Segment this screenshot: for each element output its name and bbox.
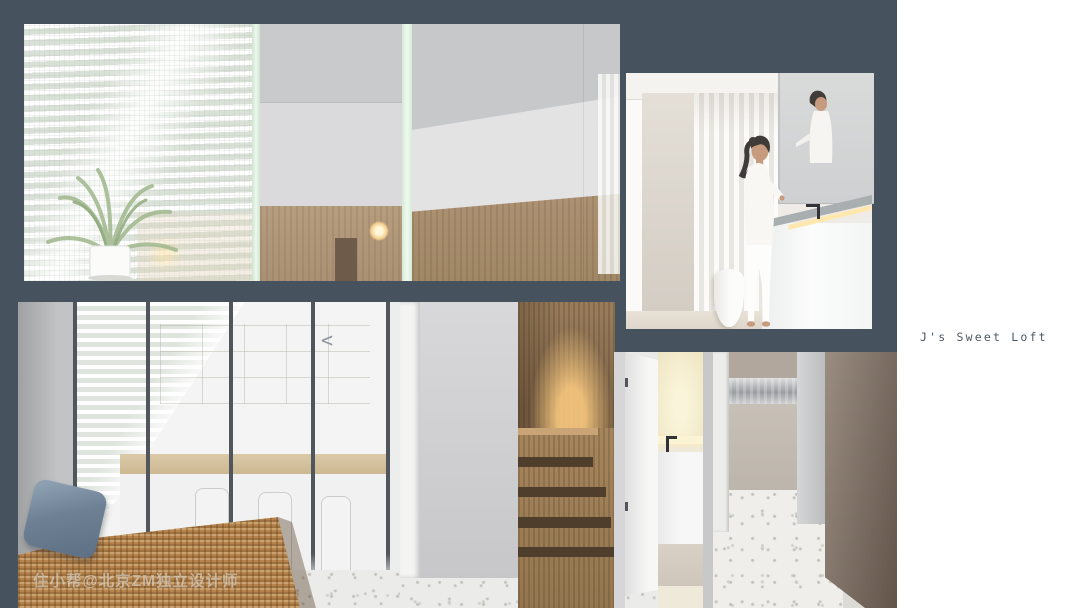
open-shelving (160, 324, 370, 404)
glass-frame (311, 302, 315, 582)
render-lounge: < (18, 302, 400, 608)
stair-tread (518, 487, 606, 497)
stair-tread (518, 457, 593, 467)
stair-room (412, 24, 620, 281)
board-panel-left-strip (0, 0, 18, 608)
woman-figure (720, 133, 786, 329)
lower-cabinet (729, 404, 797, 490)
led-strip (658, 436, 703, 444)
taupe-wall (825, 352, 897, 608)
presentation-board: < (0, 0, 1080, 608)
ceiling (260, 24, 402, 103)
faucet-icon (817, 204, 820, 219)
render-vanity-room (626, 73, 872, 329)
tall-cabinet (713, 352, 729, 532)
wall (420, 302, 518, 578)
floor (658, 544, 703, 586)
wall (703, 352, 713, 608)
ceiling (412, 24, 620, 130)
upper-cabinet (729, 352, 797, 378)
fluted-panel (598, 74, 620, 274)
headboard (335, 238, 357, 281)
wall (626, 73, 642, 329)
door-hinge (625, 502, 628, 511)
wood-stair-tower (518, 302, 615, 608)
stainless-cabinet (729, 378, 797, 404)
stair-tread (518, 547, 615, 557)
lit-niche (658, 352, 703, 438)
mirror-reflection (780, 73, 844, 165)
wall-column (797, 352, 825, 524)
potted-plant-icon (30, 162, 192, 281)
render-powder-room (614, 352, 713, 608)
wall-corner (583, 24, 584, 281)
render-section-view (24, 24, 620, 281)
wood-counter (120, 454, 390, 474)
page-title: J's Sweet Loft (920, 330, 1048, 344)
wall (614, 352, 626, 608)
step-highlight (518, 428, 598, 435)
wood-stair-volume (412, 192, 620, 281)
wall-pillar (400, 302, 420, 578)
glass-partition (402, 24, 412, 281)
stair-steps (518, 428, 615, 608)
open-door (625, 352, 658, 596)
ghost-stool (321, 496, 351, 576)
wood-wainscot (260, 206, 402, 281)
glass-frame (386, 302, 390, 582)
doorway (658, 352, 703, 608)
wall (260, 103, 402, 206)
render-staircase (400, 302, 615, 608)
wall-shadow (989, 352, 1009, 608)
stair-tread (518, 517, 611, 528)
faucet-icon (666, 436, 669, 452)
chevron-left-icon: < (321, 330, 333, 350)
basin-cabinet (658, 452, 703, 544)
mirror-cabinet (778, 73, 874, 204)
stair-upper-volume (518, 302, 615, 435)
wall-lamp (369, 221, 389, 241)
wall (642, 93, 694, 311)
glass-edge (252, 24, 260, 281)
render-hallway (713, 352, 897, 608)
watermark: 住小帮@北京ZM独立设计师 (33, 569, 239, 591)
door-hinge (625, 378, 628, 387)
